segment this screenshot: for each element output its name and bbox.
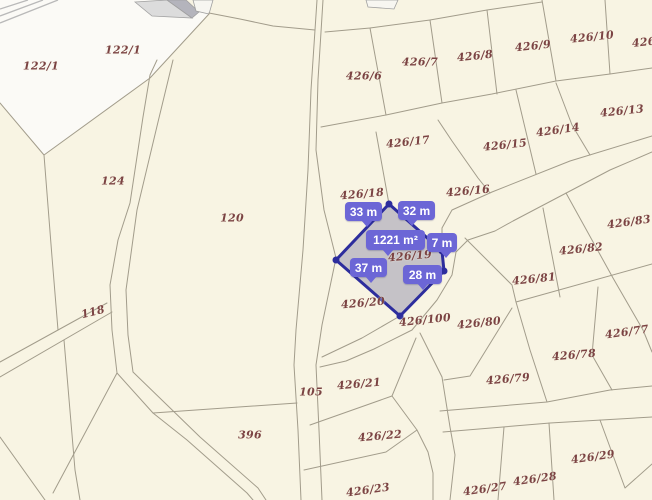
boundary [53, 373, 117, 493]
cadastral-map-canvas[interactable]: 122/1122/1124120118396105426/6426/7426/8… [0, 0, 652, 500]
white-parcel-area [0, 0, 209, 155]
boundary [153, 403, 297, 413]
boundary [310, 396, 392, 425]
road-105-west [294, 0, 317, 500]
parcel-number-label: 426/ [631, 34, 652, 50]
building-footprints [135, 0, 398, 18]
boundary [0, 437, 45, 500]
road-105-east [316, 0, 336, 500]
parcel-number-label: 122/1 [105, 44, 141, 57]
measurement-bubble: 37 m [350, 258, 387, 277]
road-124-west [110, 60, 253, 500]
parcel-number-label: 396 [238, 429, 262, 442]
boundary [516, 90, 536, 174]
boundary [556, 83, 590, 155]
parcel-number-label: 426/6 [346, 70, 382, 83]
bubble-tail [382, 249, 394, 256]
boundary [438, 120, 490, 193]
road-bottom-lower [443, 417, 652, 432]
measurement-bubble: 33 m [345, 202, 382, 221]
parcel-number-label: 105 [299, 386, 323, 399]
boundary [64, 340, 80, 500]
measurement-bubble: 1221 m² [366, 230, 425, 250]
boundary [549, 423, 554, 500]
measurement-bubble: 7 m [427, 233, 457, 252]
boundary [44, 155, 58, 330]
bubble-tail [417, 283, 429, 290]
path-118-south [0, 312, 112, 377]
boundary [325, 2, 542, 32]
bubble-tail [406, 219, 418, 226]
boundary [322, 316, 400, 357]
parcel-number-label: 120 [220, 212, 244, 225]
parcel-boundary-layer [0, 0, 652, 500]
vertex-dot [386, 201, 393, 208]
bubble-tail [361, 220, 373, 227]
parcel-number-label: 122/1 [23, 60, 59, 73]
bubble-tail [365, 276, 377, 283]
road-se-west [392, 338, 433, 500]
road-se-east [420, 333, 455, 500]
parcel-number-label: 426/7 [402, 56, 438, 69]
measurement-bubble: 32 m [398, 201, 435, 220]
boundary [209, 13, 315, 30]
vertex-dot [333, 257, 340, 264]
bubble-tail [440, 251, 452, 258]
parcel-number-label: 124 [101, 175, 125, 188]
measurement-bubble: 28 m [403, 265, 442, 284]
